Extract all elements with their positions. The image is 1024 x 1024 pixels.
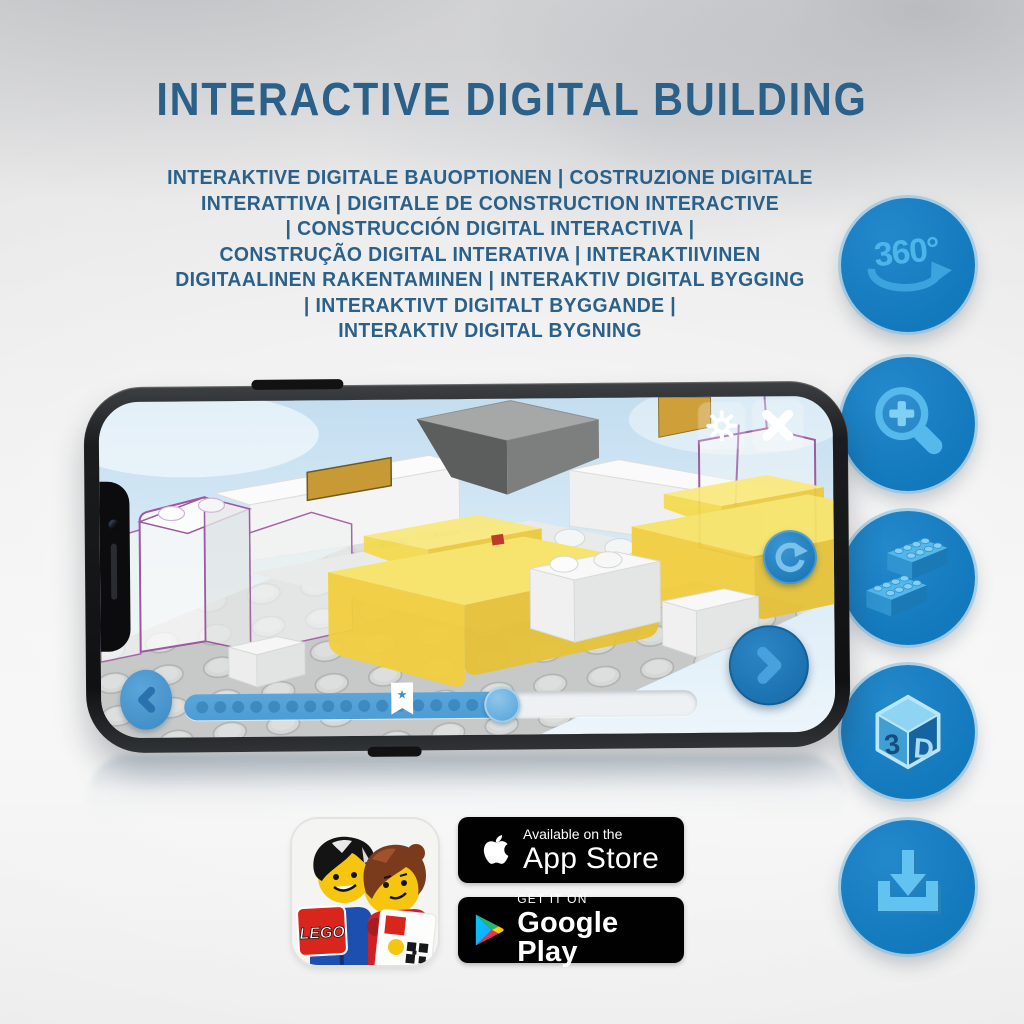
feature-circle-download <box>841 820 975 954</box>
slider-dot <box>358 700 370 712</box>
close-button[interactable] <box>753 400 803 450</box>
slider-dot <box>268 701 280 713</box>
google-play-badge[interactable]: GET IT ON Google Play <box>458 897 684 963</box>
rotate-button[interactable] <box>763 530 817 584</box>
star-icon: ★ <box>397 688 408 702</box>
slider-fill <box>184 692 502 721</box>
volume-button <box>251 379 343 390</box>
lego-minifigures-art: LEGO <box>292 819 438 965</box>
feature-circle-zoom <box>841 357 975 491</box>
close-icon <box>761 408 795 442</box>
gear-icon <box>705 409 739 443</box>
cube-3-label: 3 <box>883 728 902 760</box>
rotate-icon <box>770 537 810 577</box>
chevron-left-icon <box>131 685 161 715</box>
next-step-button[interactable] <box>729 625 810 706</box>
slider-dot <box>250 701 262 713</box>
lego-app-icon[interactable]: LEGO <box>292 819 438 965</box>
page-title: INTERACTIVE DIGITAL BUILDING <box>51 72 973 126</box>
poster-background: INTERACTIVE DIGITAL BUILDING INTERAKTIVE… <box>0 0 1024 1024</box>
slider-dot <box>430 699 442 711</box>
slider-dot <box>286 700 298 712</box>
slider-dots <box>184 699 496 714</box>
power-button <box>368 746 422 756</box>
lego-logo-text: LEGO <box>299 924 346 943</box>
google-play-tagline: GET IT ON <box>517 893 668 905</box>
slider-handle[interactable] <box>484 687 520 723</box>
brick-icon <box>856 526 960 630</box>
slider-dot <box>304 700 316 712</box>
subtitle-text: INTERAKTIVE DIGITALE BAUOPTIONEN | COSTR… <box>83 166 898 345</box>
zoom-in-icon <box>856 372 960 476</box>
google-play-icon <box>474 911 504 949</box>
google-play-title: Google Play <box>517 909 668 967</box>
app-store-title: App Store <box>523 844 659 874</box>
slider-dot <box>340 700 352 712</box>
download-icon <box>858 837 958 937</box>
slider-dot <box>448 699 460 711</box>
phone-screen: ★ <box>99 396 836 738</box>
3d-cube-icon: 3 D <box>856 680 960 784</box>
progress-slider[interactable]: ★ <box>184 690 697 720</box>
gear-button[interactable] <box>699 403 745 449</box>
slider-dot <box>232 701 244 713</box>
prev-step-button[interactable] <box>120 670 173 730</box>
speaker-grill <box>111 544 117 600</box>
feature-circle-3d: 3 D <box>841 665 975 799</box>
360-label: 360° <box>872 231 940 275</box>
slider-dot <box>376 700 388 712</box>
feature-circle-brick <box>841 511 975 645</box>
slider-dot <box>466 699 478 711</box>
chevron-right-icon <box>747 643 791 687</box>
slider-track[interactable]: ★ <box>184 690 697 720</box>
slider-dot <box>412 699 424 711</box>
slider-dot <box>214 701 226 713</box>
phone-mockup: ★ <box>83 381 850 754</box>
camera-dot <box>109 520 119 530</box>
360-rotate-icon: 360° <box>854 211 962 319</box>
slider-dot <box>196 701 208 713</box>
cube-d-label: D <box>913 732 935 764</box>
slider-dot <box>322 700 334 712</box>
feature-circle-360: 360° <box>841 198 975 332</box>
notch <box>99 482 130 652</box>
phone-reflection <box>88 755 846 839</box>
